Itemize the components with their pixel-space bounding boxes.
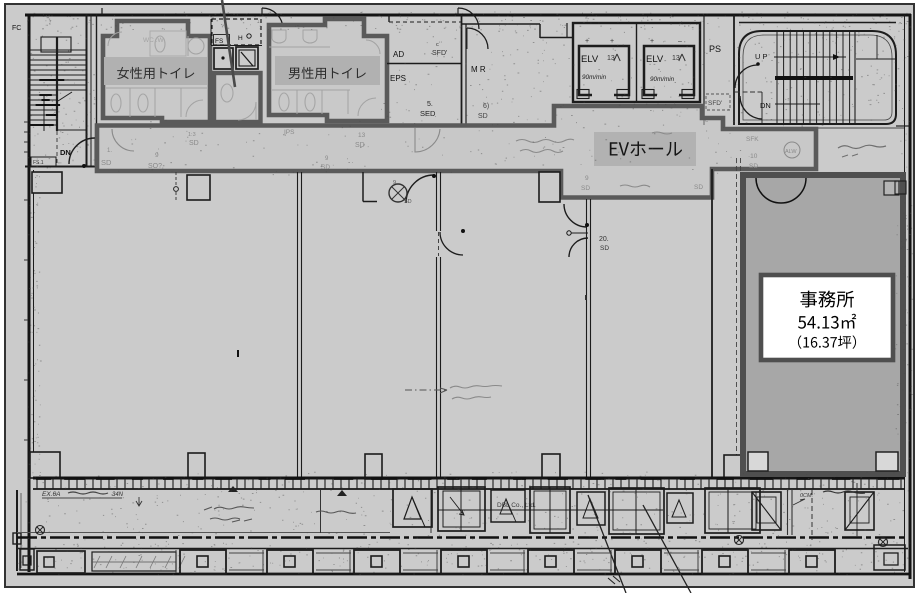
- svg-text:SFK: SFK: [746, 136, 759, 143]
- svg-text:+: +: [650, 38, 654, 45]
- svg-text:EPS: EPS: [390, 74, 406, 83]
- svg-text:9: 9: [585, 175, 589, 182]
- svg-text:ALW: ALW: [785, 149, 797, 155]
- svg-text:SD: SD: [600, 245, 609, 252]
- svg-text:34N: 34N: [112, 492, 124, 498]
- svg-text:H: H: [238, 35, 243, 42]
- svg-text:ELV: ELV: [646, 54, 664, 65]
- svg-text:AD: AD: [393, 50, 404, 59]
- svg-text:SD: SD: [478, 113, 488, 120]
- svg-text:90m/min: 90m/min: [582, 74, 607, 81]
- svg-text:FS: FS: [215, 38, 224, 45]
- svg-text:SFD': SFD': [432, 50, 447, 57]
- svg-text:FC: FC: [12, 25, 21, 32]
- svg-text:5.: 5.: [427, 101, 433, 108]
- svg-text:9: 9: [393, 180, 396, 186]
- svg-text:+: +: [585, 38, 589, 45]
- svg-text:SD: SD: [189, 140, 199, 147]
- svg-text:EX.6A: EX.6A: [42, 491, 60, 498]
- svg-text:ELV: ELV: [581, 54, 599, 65]
- svg-text:SD: SD: [694, 184, 703, 191]
- svg-text:SED: SED: [420, 109, 436, 118]
- svg-text:SD: SD: [355, 142, 365, 149]
- svg-text:SD: SD: [404, 199, 412, 205]
- svg-text:PS: PS: [709, 44, 721, 54]
- svg-text:13: 13: [358, 132, 366, 139]
- svg-text:90m/min: 90m/min: [650, 76, 675, 83]
- svg-text:U P: U P: [755, 52, 768, 61]
- svg-text:DN: DN: [60, 148, 71, 157]
- svg-text:WC .W: WC .W: [143, 37, 164, 44]
- svg-text:SD: SD: [101, 158, 112, 167]
- svg-text:c´´: c´´: [436, 42, 443, 48]
- svg-text:1.: 1.: [107, 148, 112, 154]
- svg-text:SD: SD: [321, 164, 330, 171]
- svg-text:+: +: [610, 38, 614, 45]
- svg-text:20.: 20.: [599, 236, 609, 243]
- svg-text:SD: SD: [749, 163, 758, 170]
- svg-text:M R: M R: [471, 65, 486, 74]
- svg-text:6): 6): [483, 103, 489, 110]
- svg-text:0CM: 0CM: [800, 493, 812, 499]
- svg-text:–: –: [678, 38, 682, 45]
- svg-text:·10: ·10: [748, 153, 758, 160]
- svg-text:SFD': SFD': [708, 100, 722, 107]
- svg-text:SO?: SO?: [148, 163, 162, 170]
- svg-text:1:3: 1:3: [188, 132, 196, 138]
- svg-text:DBL Co., Ltd.: DBL Co., Ltd.: [497, 502, 536, 509]
- svg-text:SD: SD: [581, 185, 590, 192]
